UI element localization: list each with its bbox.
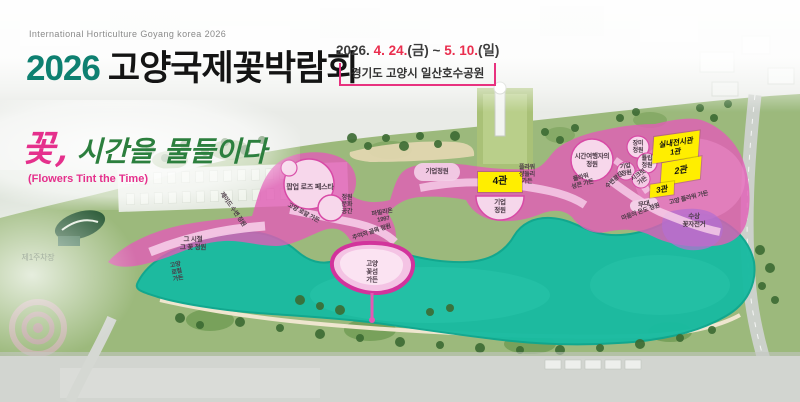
hall-4-box: 4관 (478, 172, 522, 192)
date-end: 5. 10. (444, 43, 478, 58)
festival-map-poster: International Horticulture Goyang korea … (0, 0, 800, 402)
date-tilde: ~ (433, 43, 441, 58)
title-year: 2026 (26, 49, 100, 88)
slogan-english: (Flowers Tint the Time) (28, 173, 267, 185)
slogan-flower-word: 꽃, (22, 128, 68, 170)
event-title: 2026고양국제꽃박람회 (26, 40, 357, 91)
date-year: 2026. (336, 43, 370, 58)
label-goyang-flower-island-garden: 고양 꽃섬 가든 (366, 260, 378, 283)
label-popup-rose-festa: 팝업 로즈 페스타 (286, 184, 333, 192)
left-white-fade (0, 190, 140, 360)
event-date-block: 2026. 4. 24.(금) ~ 5. 10.(일) 경기도 고양시 일산호수… (336, 39, 499, 86)
date-end-day: (일) (478, 43, 499, 58)
event-subtitle: International Horticulture Goyang korea … (29, 29, 226, 39)
venue-bracket: 경기도 고양시 일산호수공원 (339, 63, 496, 86)
slogan-phrase: 시간을 물들이다 (77, 135, 267, 168)
label-time-traveler-garden: 시간여행자의 정원 (575, 153, 610, 169)
label-corporate-garden-sign: 기업정원 (425, 168, 448, 176)
label-flower-chandelier-garden: 플라워 샹들리 가든 (519, 165, 535, 187)
label-floating-flower-bicycle: 수상 꽃자전거 (682, 213, 705, 229)
label-corporate-garden: 기업 정원 (494, 199, 506, 215)
event-dates: 2026. 4. 24.(금) ~ 5. 10.(일) (336, 39, 499, 59)
label-those-days-flower-garden: 그 시절 그 꽃 정원 (180, 236, 206, 252)
label-rose-garden: 장미 정원 (633, 141, 644, 155)
slogan-block: 꽃,시간을 물들이다 (Flowers Tint the Time) (22, 120, 267, 185)
label-parking-lot-1: 제1주차장 (22, 253, 55, 263)
date-start: 4. 24. (374, 43, 408, 58)
label-garden-culture-space: 정원 문화 공간 (342, 195, 353, 217)
title-korean: 고양국제꽃박람회 (108, 49, 358, 88)
date-start-day: (금) (407, 43, 428, 58)
